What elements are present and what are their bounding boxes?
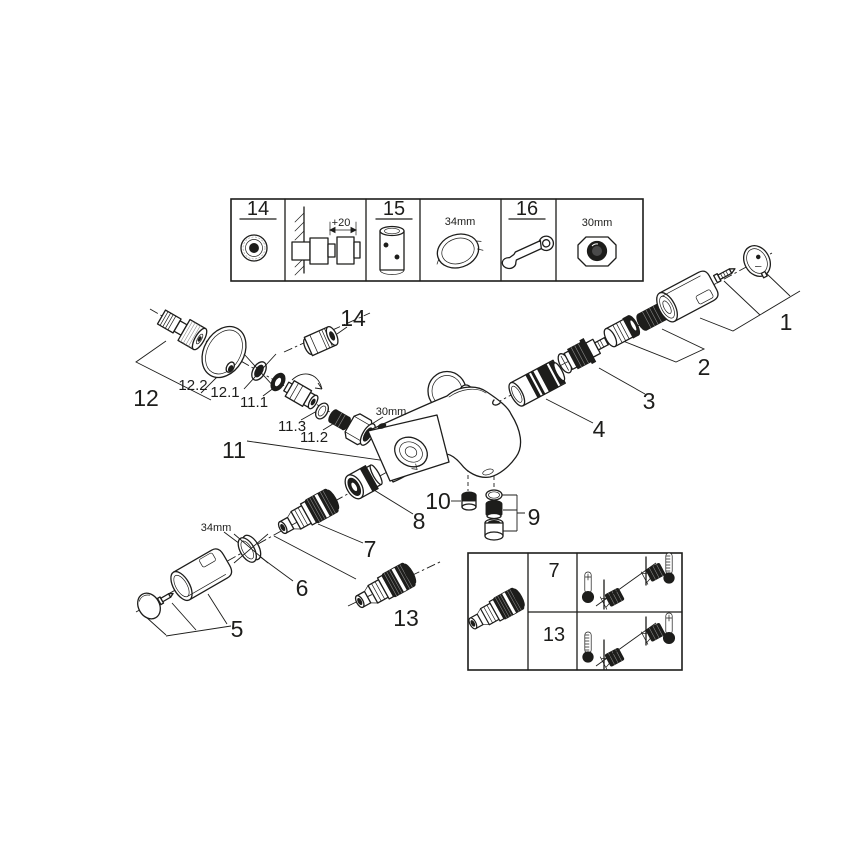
callout-9: 9	[528, 504, 541, 530]
part-11-connector	[282, 374, 322, 412]
row-7-orientation-diagram	[582, 553, 674, 609]
part-6-ring-crossed-out	[234, 532, 268, 565]
callout-12-1: 12.1	[210, 384, 239, 401]
callout-12: 12	[133, 385, 159, 411]
strip-item-16-label: 16	[516, 198, 538, 220]
check-valve-icon	[464, 586, 527, 635]
callout-11-2: 11.2	[300, 429, 328, 446]
part-14-cap-nut	[301, 325, 340, 357]
callout-4: 4	[593, 416, 606, 442]
callout-2: 2	[698, 354, 711, 380]
wall-spacer-dimension-icon: +20	[292, 207, 360, 275]
extension-tool-icon	[380, 227, 404, 275]
callout-5: 5	[231, 616, 244, 642]
thermometer-scale-icon	[583, 632, 593, 662]
part-12-2-s-union	[155, 307, 209, 352]
callout-12-2: 12.2	[178, 377, 207, 394]
top-reference-strip: 14 +20 15	[231, 198, 643, 281]
table-row-7-label: 7	[548, 560, 559, 582]
part-10-insert	[462, 492, 476, 510]
strip-dim-plus20: +20	[332, 217, 351, 229]
callout-11-1: 11.1	[240, 394, 268, 411]
parts-diagram-page: 1 2 3 4 5 6 7 8 9 10 11 12 13 14 11.1 11…	[0, 0, 868, 868]
callout-14: 14	[340, 305, 366, 331]
part-8-adapter	[341, 462, 385, 502]
callout-7: 7	[364, 536, 377, 562]
part-1-screw	[714, 265, 737, 282]
callout-13: 13	[393, 605, 419, 631]
thermometer-warm-icon	[663, 613, 674, 644]
callout-6: 6	[296, 575, 309, 601]
part-5-cap	[133, 589, 165, 623]
check-valve-table: 7 13	[464, 553, 682, 670]
callout-1: 1	[780, 309, 793, 335]
faucet-body	[368, 372, 521, 483]
strip-dim-34mm: 34mm	[445, 216, 476, 228]
callout-11: 11	[222, 437, 246, 463]
part-4-sleeve	[506, 359, 568, 408]
part-7-check-valve	[274, 487, 342, 541]
dimension-30mm: 30mm	[376, 406, 407, 418]
strip-item-15-label: 15	[383, 198, 405, 220]
part-5-handle	[167, 546, 235, 604]
open-end-wrench-icon	[498, 235, 557, 270]
part-1-cap	[738, 241, 776, 283]
table-row-13-label: 13	[543, 624, 565, 646]
exploded-parts-diagram: 1 2 3 4 5 6 7 8 9 10 11 12 13 14 11.1 11…	[0, 0, 868, 868]
thermometer-scale-icon	[664, 553, 674, 583]
strip-dim-30mm: 30mm	[582, 217, 613, 229]
row-13-orientation-diagram	[583, 613, 675, 669]
cap-nut-front-icon	[578, 237, 616, 266]
cap-nut-icon	[241, 235, 267, 261]
callout-8: 8	[413, 508, 426, 534]
callout-10: 10	[425, 488, 451, 514]
strip-item-14-label: 14	[247, 198, 269, 220]
dimension-34mm: 34mm	[201, 522, 232, 534]
ring-nut-icon	[430, 228, 487, 275]
part-9-mousseur-set	[485, 490, 503, 540]
callout-3: 3	[643, 388, 656, 414]
thermometer-warm-icon	[582, 572, 593, 603]
part-5-screw	[157, 590, 174, 604]
